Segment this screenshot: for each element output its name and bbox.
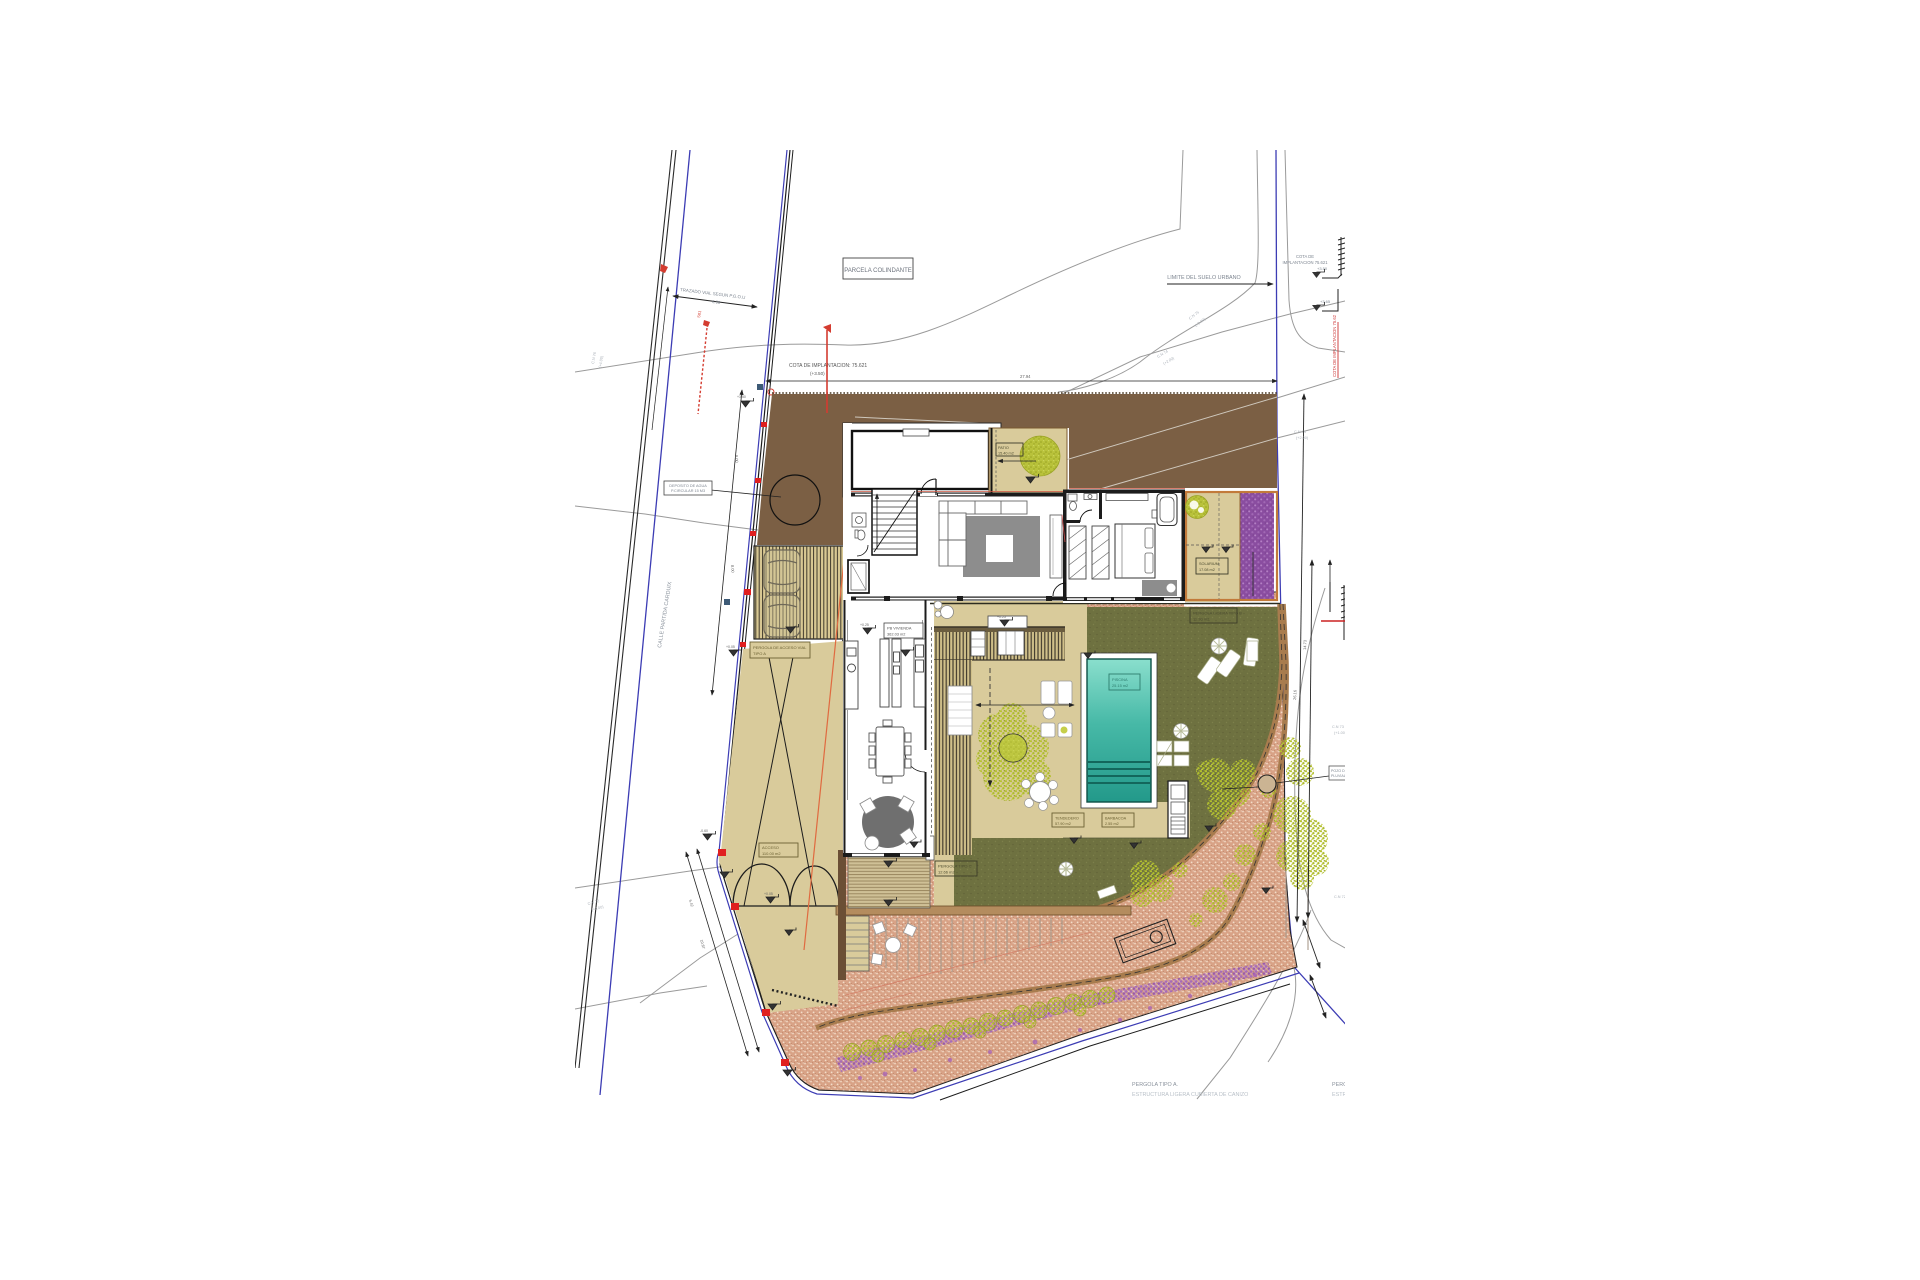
svg-text:8.00: 8.00 (730, 565, 736, 574)
svg-text:PERGOLA TIPO A.: PERGOLA TIPO A. (1132, 1082, 1178, 1088)
svg-text:COTA DE IMPLANTACION: 75.621: COTA DE IMPLANTACION: 75.621 (789, 363, 867, 369)
svg-text:2.55 m2: 2.55 m2 (1105, 822, 1119, 826)
svg-text:IMPLANTACION 75.621: IMPLANTACION 75.621 (1282, 260, 1328, 265)
svg-text:DEPOSITO DE AGUA: DEPOSITO DE AGUA (669, 484, 707, 488)
svg-text:PISCINA: PISCINA (1112, 677, 1128, 682)
svg-text:+0.05: +0.05 (726, 645, 735, 649)
svg-text:+3.50: +3.50 (737, 395, 746, 399)
svg-text:11.30 m2: 11.30 m2 (1193, 617, 1210, 622)
svg-text:ESTRUCTURA LIGERA CUBIERTA DE: ESTRUCTURA LIGERA CUBIERTA DE CANIZO (1132, 1092, 1248, 1098)
svg-text:C.N 72: C.N 72 (1334, 895, 1346, 899)
svg-text:17.08 m2: 17.08 m2 (1199, 568, 1215, 572)
svg-text:+0.25: +0.25 (860, 623, 869, 627)
svg-text:TENDEDERO: TENDEDERO (1055, 817, 1079, 821)
svg-text:PB VIVIENDA: PB VIVIENDA (887, 626, 912, 631)
svg-text:6.00: 6.00 (712, 299, 721, 305)
svg-text:25.15 m2: 25.15 m2 (1112, 683, 1128, 688)
svg-text:BARBACOA: BARBACOA (1105, 817, 1127, 821)
svg-text:PERGOLA LIGERA TIPO B: PERGOLA LIGERA TIPO B (1193, 611, 1242, 616)
svg-text:COTA DE IMPLANTACION 75.62: COTA DE IMPLANTACION 75.62 (1332, 314, 1337, 377)
svg-text:26.16: 26.16 (1292, 689, 1298, 700)
svg-text:C.N 73: C.N 73 (1332, 725, 1344, 729)
svg-text:+3.65: +3.65 (1320, 299, 1331, 304)
svg-text:PATIO: PATIO (998, 446, 1009, 450)
svg-text:C.N 74: C.N 74 (1294, 430, 1306, 434)
svg-text:PERGOLA DE ACCESO VIAL: PERGOLA DE ACCESO VIAL (753, 645, 807, 650)
svg-text:(+1.00): (+1.00) (1334, 731, 1347, 735)
svg-text:TIPO A: TIPO A (753, 651, 766, 656)
svg-text:57.90 m2: 57.90 m2 (1055, 822, 1071, 826)
svg-text:ACCESO: ACCESO (762, 845, 779, 850)
svg-text:ESTR: ESTR (1332, 1092, 1346, 1098)
svg-text:PERGOLA TIPO C: PERGOLA TIPO C (938, 864, 972, 869)
svg-text:15.40 m2: 15.40 m2 (998, 452, 1014, 456)
svg-text:+3.50: +3.50 (1317, 266, 1328, 271)
svg-text:-0.60: -0.60 (700, 829, 708, 833)
svg-text:PERG: PERG (1332, 1082, 1347, 1088)
svg-text:LIMITE DEL SUELO URBANO: LIMITE DEL SUELO URBANO (1167, 275, 1241, 281)
svg-text:SOLARIUM: SOLARIUM (1199, 562, 1219, 566)
svg-text:362.03 m2: 362.03 m2 (887, 632, 905, 637)
svg-text:PARCELA COLINDANTE: PARCELA COLINDANTE (844, 268, 912, 274)
svg-text:(+2.00): (+2.00) (1296, 436, 1309, 440)
svg-text:9.00: 9.00 (734, 455, 740, 464)
svg-text:110.00 m2: 110.00 m2 (762, 851, 781, 856)
svg-text:COTA DE: COTA DE (1296, 254, 1314, 259)
svg-text:12.66 m2: 12.66 m2 (938, 870, 955, 875)
svg-text:27.94: 27.94 (1020, 374, 1031, 379)
svg-text:14.73: 14.73 (1302, 639, 1308, 650)
svg-text:(+3.50): (+3.50) (810, 371, 825, 376)
svg-text:+0.05: +0.05 (764, 892, 773, 896)
svg-text:P.CIRCULAR 15 M3: P.CIRCULAR 15 M3 (671, 489, 705, 493)
svg-text:+0.25: +0.25 (997, 615, 1006, 619)
